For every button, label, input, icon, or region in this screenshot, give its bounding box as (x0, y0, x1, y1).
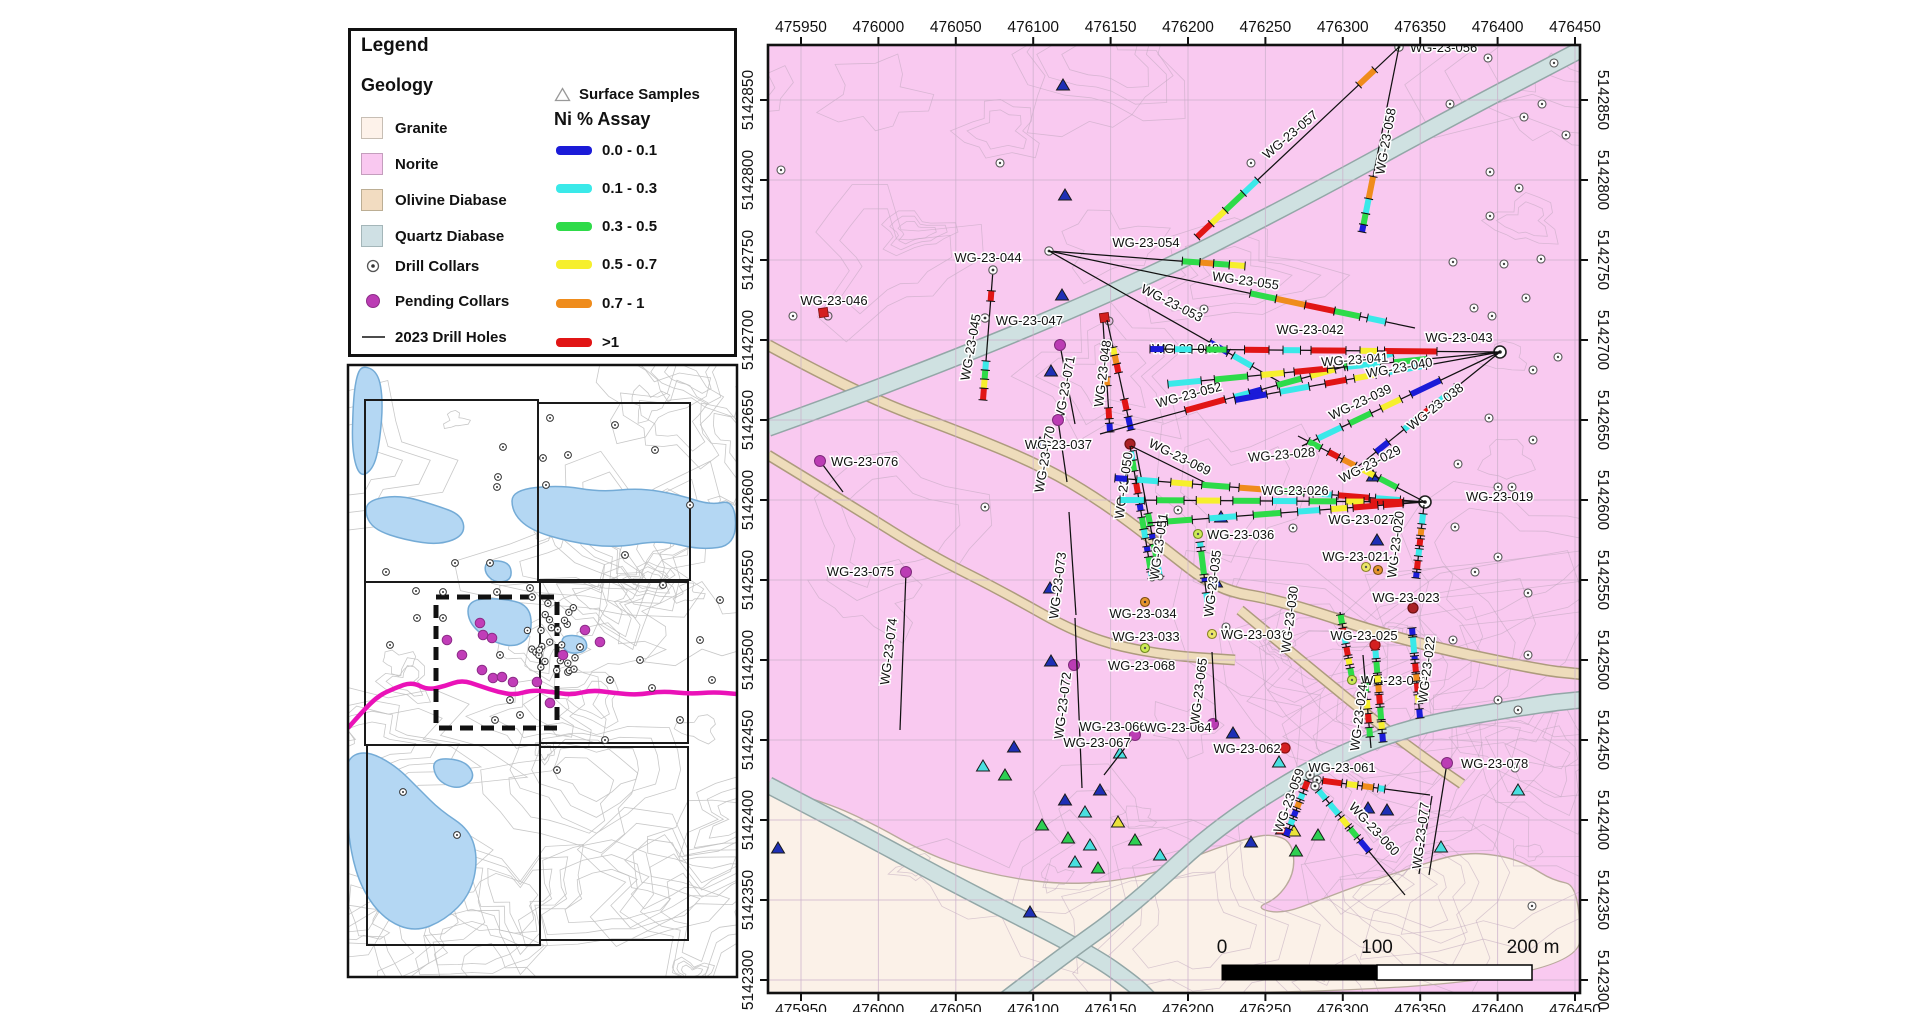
northing-label-left: 5142600 (740, 469, 757, 530)
red-collar-marker (1280, 743, 1290, 753)
scale-bar-label: 0 (1217, 937, 1228, 958)
legend-surface-samples-row: Surface Samples (554, 82, 700, 106)
scale-bar-label: 100 (1361, 937, 1393, 958)
drill-hole-label: WG-23-066 (1079, 719, 1146, 734)
symbol-label: Drill Collars (395, 258, 479, 275)
northing-label-left: 5142500 (740, 629, 757, 690)
drill-collar-icon (361, 258, 385, 274)
easting-label-bottom: 476300 (1317, 1002, 1369, 1012)
northing-label-left: 5142400 (740, 789, 757, 850)
legend-assay-class-B: 0.0 - 0.1 (556, 138, 657, 162)
drill-hole-label: WG-23-076 (831, 454, 898, 469)
drill-hole-label: WG-23-036 (1207, 527, 1274, 542)
yellow-collar-marker (1208, 630, 1217, 639)
northing-label-right: 5142550 (1594, 550, 1611, 611)
ygreen-collar-marker (1194, 530, 1203, 539)
assay-class-label: 0.5 - 0.7 (602, 256, 657, 273)
drill-hole-label: WG-23-067 (1063, 735, 1130, 750)
legend-item-pending-collars: Pending Collars (361, 289, 509, 313)
easting-label-top: 476150 (1085, 19, 1137, 36)
easting-label-top: 476350 (1394, 19, 1446, 36)
drill-hole-label: WG-23-037 (1025, 437, 1092, 452)
symbol-label: 2023 Drill Holes (395, 329, 507, 346)
legend-item-norite: Norite (361, 152, 438, 176)
drill-hole-label: WG-23-019 (1466, 489, 1533, 504)
drill-hole-label: WG-23-061 (1308, 760, 1375, 775)
geology-swatch (361, 189, 383, 211)
northing-label-right: 5142800 (1594, 150, 1611, 211)
assay-class-label: 0.7 - 1 (602, 295, 645, 312)
northing-label-left: 5142300 (740, 949, 757, 1010)
map-scene[interactable]: WG-23-056WG-23-057WG-23-058WG-23-044WG-2… (0, 0, 1932, 1012)
northing-label-left: 5142850 (740, 69, 757, 130)
geology-label: Olivine Diabase (395, 192, 507, 209)
geology-label: Granite (395, 120, 448, 137)
easting-label-bottom: 476000 (853, 1002, 905, 1012)
easting-label-bottom: 476400 (1472, 1002, 1524, 1012)
easting-label-top: 476050 (930, 19, 982, 36)
northing-label-right: 5142750 (1594, 230, 1611, 291)
easting-label-bottom: 476350 (1394, 1002, 1446, 1012)
easting-label-bottom: 475950 (775, 1002, 827, 1012)
legend-assay-class-G: 0.3 - 0.5 (556, 214, 657, 238)
northing-label-left: 5142550 (740, 549, 757, 610)
drill-hole-label: WG-23-026 (1261, 483, 1328, 498)
northing-label-right: 5142600 (1594, 470, 1611, 531)
northing-label-right: 5142700 (1594, 310, 1611, 371)
easting-label-top: 476300 (1317, 19, 1369, 36)
pending-collar-marker (815, 456, 826, 467)
drill-hole-label: WG-23-027 (1328, 512, 1395, 527)
pending-collar-icon (361, 293, 385, 309)
northing-label-right: 5142450 (1594, 710, 1611, 771)
geology-swatch (361, 117, 383, 139)
legend-assay-class-C: 0.1 - 0.3 (556, 176, 657, 200)
pending-collar-marker (1055, 340, 1066, 351)
easting-label-bottom: 476050 (930, 1002, 982, 1012)
drill-hole-label: WG-23-047 (996, 313, 1063, 328)
legend-item-drill-collars: Drill Collars (361, 254, 479, 278)
symbol-label: Pending Collars (395, 293, 509, 310)
assay-class-label: >1 (602, 334, 619, 351)
drill-hole-label: WG-23-046 (800, 293, 867, 308)
northing-label-right: 5142850 (1594, 70, 1611, 131)
legend-assay-class-Y: 0.5 - 0.7 (556, 252, 657, 276)
overview-map[interactable] (243, 341, 821, 1012)
legend-assay-class-O: 0.7 - 1 (556, 291, 645, 315)
circle-collar-marker (1311, 782, 1319, 790)
legend-item-granite: Granite (361, 116, 448, 140)
pending-collar-marker (1069, 660, 1080, 671)
drill-hole-label: WG-23-042 (1276, 322, 1343, 337)
drill-hole-label: WG-23-054 (1112, 235, 1179, 250)
northing-label-left: 5142700 (740, 309, 757, 370)
assay-color-bar (556, 222, 592, 231)
geology-label: Quartz Diabase (395, 228, 504, 245)
easting-label-top: 475950 (775, 19, 827, 36)
drill-hole-wg-23-064: WG-23-064 (1144, 719, 1218, 736)
drill-hole-label: WG-23-062 (1213, 741, 1280, 756)
ygreen-collar-marker (1348, 676, 1357, 685)
northing-label-right: 5142650 (1594, 390, 1611, 451)
ygreen-collar-marker (1141, 644, 1150, 653)
assay-class-label: 0.0 - 0.1 (602, 142, 657, 159)
drill-hole-label: WG-23-032 (1221, 627, 1288, 642)
northing-label-right: 5142350 (1594, 870, 1611, 931)
northing-label-left: 5142350 (740, 869, 757, 930)
legend-assay-class-R: >1 (556, 330, 619, 354)
surface-sample-icon (554, 87, 571, 102)
northing-label-right: 5142400 (1594, 790, 1611, 851)
northing-label-right: 5142500 (1594, 630, 1611, 691)
geology-label: Norite (395, 156, 438, 173)
geology-swatch (361, 225, 383, 247)
legend-assay-title: Ni % Assay (554, 109, 650, 130)
drill-hole-label: WG-23-043 (1425, 330, 1492, 345)
orange-collar-marker (1374, 566, 1383, 575)
drill-hole-wg-23-067: WG-23-067 (1063, 735, 1130, 750)
circle-collar-marker (989, 266, 997, 274)
assay-color-bar (556, 338, 592, 347)
easting-label-bottom: 476100 (1007, 1002, 1059, 1012)
drill-hole-label: WG-23-078 (1461, 756, 1528, 771)
northing-label-right: 5142300 (1594, 950, 1611, 1011)
legend-surface-samples-label: Surface Samples (579, 86, 700, 103)
drill-hole-label: WG-23-075 (827, 564, 894, 579)
drill-hole-label: WG-23-021 (1322, 549, 1389, 564)
pending-collar-marker (901, 567, 912, 578)
easting-label-bottom: 476450 (1549, 1002, 1601, 1012)
legend-item-2023-drill-holes: 2023 Drill Holes (361, 325, 507, 349)
drill-hole-line-icon (361, 333, 385, 341)
assay-color-bar (556, 184, 592, 193)
drill-hole-wg-23-062: WG-23-062 (1213, 741, 1290, 756)
drill-hole-label: WG-23-068 (1108, 658, 1175, 673)
easting-label-top: 476000 (853, 19, 905, 36)
easting-label-top: 476200 (1162, 19, 1214, 36)
drill-hole-label: WG-23-025 (1330, 628, 1397, 643)
northing-label-left: 5142450 (740, 709, 757, 770)
assay-color-bar (556, 299, 592, 308)
pending-collar-marker (1053, 415, 1064, 426)
easting-label-top: 476400 (1472, 19, 1524, 36)
northing-label-left: 5142800 (740, 149, 757, 210)
drill-hole-label: WG-23-034 (1109, 606, 1176, 621)
drill-hole-label: WG-23-023 (1372, 590, 1439, 605)
easting-label-top: 476100 (1007, 19, 1059, 36)
legend-item-olivine-diabase: Olivine Diabase (361, 188, 507, 212)
easting-label-top: 476250 (1240, 19, 1292, 36)
legend-title: Legend (361, 35, 429, 57)
easting-label-bottom: 476200 (1162, 1002, 1214, 1012)
drill-hole-label: WG-23-033 (1112, 629, 1179, 644)
assay-color-bar (556, 146, 592, 155)
legend-geology-title: Geology (361, 75, 433, 96)
assay-class-label: 0.3 - 0.5 (602, 218, 657, 235)
geology-swatch (361, 153, 383, 175)
assay-class-label: 0.1 - 0.3 (602, 180, 657, 197)
northing-label-left: 5142750 (740, 229, 757, 290)
scale-bar-label: 200 m (1507, 937, 1560, 958)
legend-item-quartz-diabase: Quartz Diabase (361, 224, 504, 248)
legend-panel: Legend Geology GraniteNoriteOlivine Diab… (348, 28, 737, 357)
easting-label-bottom: 476150 (1085, 1002, 1137, 1012)
drill-hole-label: WG-23-044 (954, 250, 1021, 265)
northing-label-left: 5142650 (740, 389, 757, 450)
easting-label-top: 476450 (1549, 19, 1601, 36)
pending-collar-marker (1442, 758, 1453, 769)
easting-label-bottom: 476250 (1240, 1002, 1292, 1012)
main-map[interactable]: WG-23-056WG-23-057WG-23-058WG-23-044WG-2… (691, 0, 1841, 1012)
assay-color-bar (556, 260, 592, 269)
